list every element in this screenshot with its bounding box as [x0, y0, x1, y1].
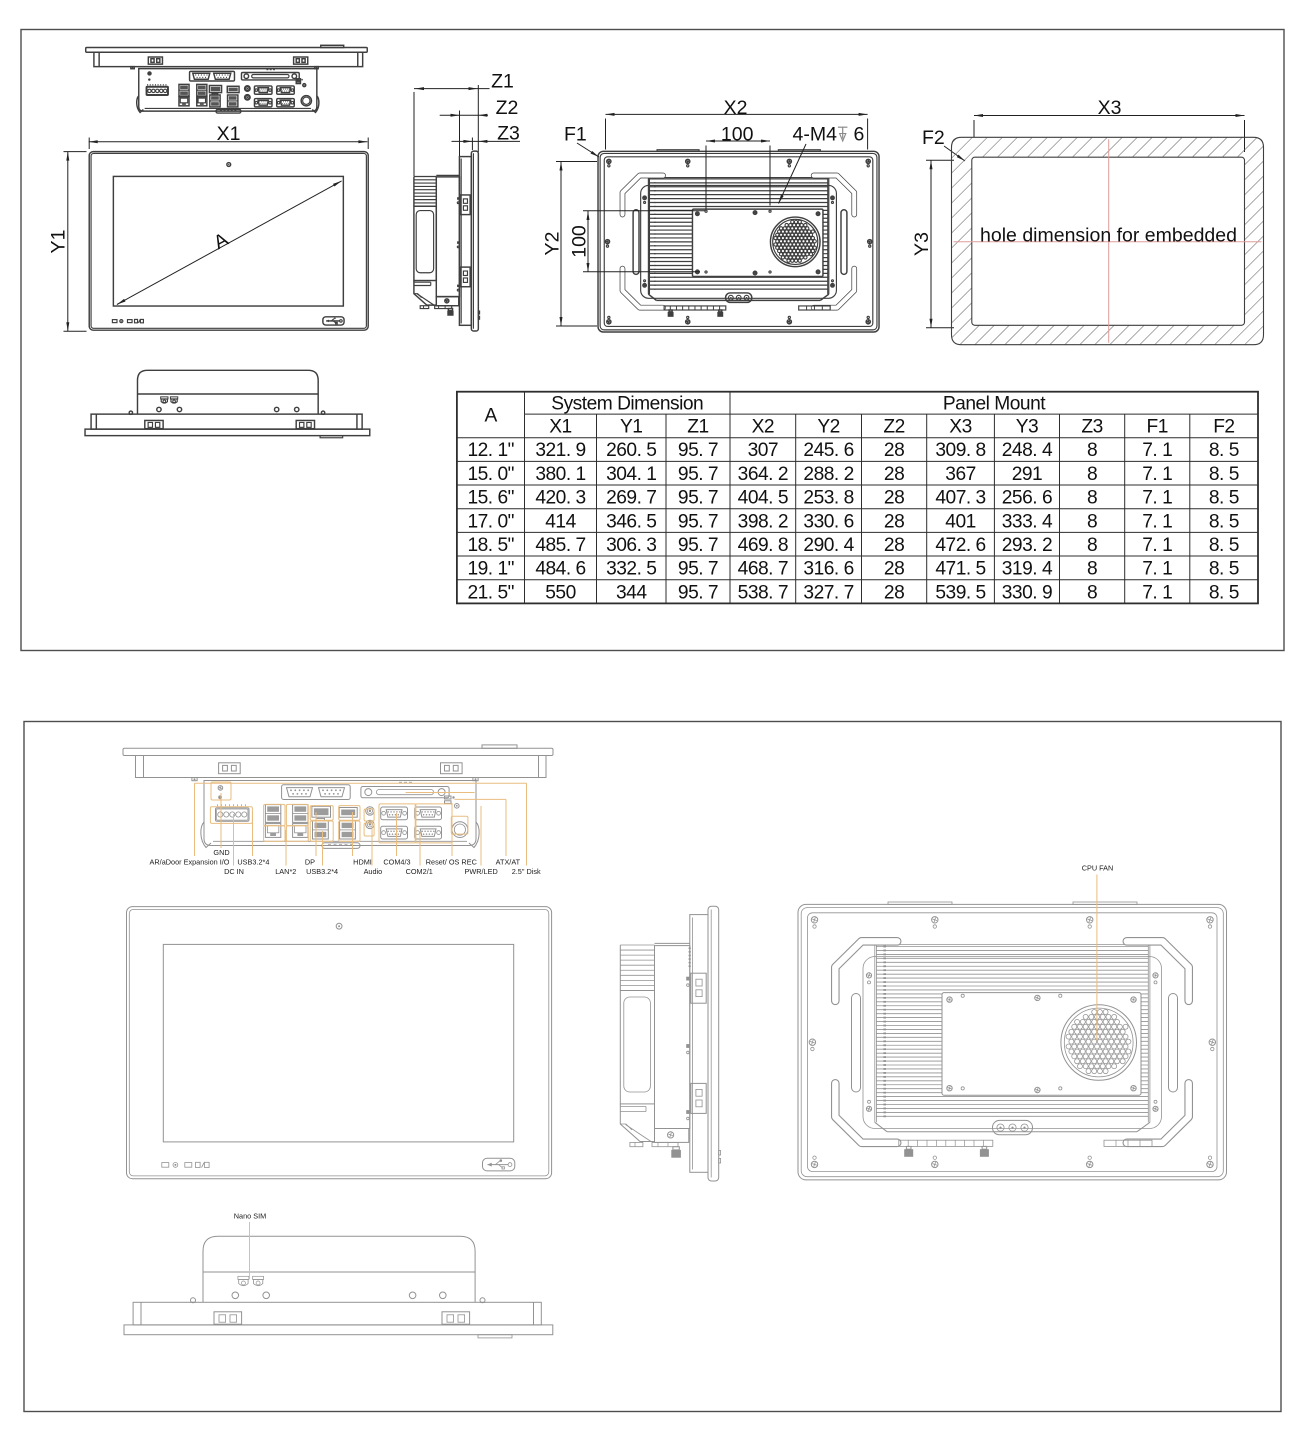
svg-text:330. 6: 330. 6	[803, 511, 853, 532]
svg-text:Nano SIM: Nano SIM	[234, 1212, 266, 1221]
svg-text:346. 5: 346. 5	[606, 511, 656, 532]
svg-text:AR/aDoor Expansion I/O: AR/aDoor Expansion I/O	[150, 857, 230, 866]
svg-text:95. 7: 95. 7	[678, 582, 718, 603]
svg-text:28: 28	[884, 559, 904, 580]
svg-text:15. 0": 15. 0"	[467, 464, 514, 485]
svg-text:8: 8	[1087, 582, 1097, 603]
svg-text:CPU FAN: CPU FAN	[1082, 864, 1114, 873]
svg-text:539. 5: 539. 5	[935, 582, 985, 603]
svg-text:304. 1: 304. 1	[606, 464, 656, 485]
svg-text:401: 401	[945, 511, 976, 532]
svg-text:USB3.2*4: USB3.2*4	[237, 857, 269, 866]
svg-text:System Dimension: System Dimension	[551, 394, 703, 415]
svg-text:8: 8	[1087, 559, 1097, 580]
svg-text:95. 7: 95. 7	[678, 488, 718, 509]
svg-text:364. 2: 364. 2	[738, 464, 788, 485]
svg-text:Reset/ OS REC: Reset/ OS REC	[426, 857, 477, 866]
svg-text:28: 28	[884, 440, 904, 461]
svg-text:Z1: Z1	[687, 417, 708, 438]
svg-text:538. 7: 538. 7	[738, 582, 788, 603]
svg-text:7. 1: 7. 1	[1142, 535, 1172, 556]
svg-text:485. 7: 485. 7	[535, 535, 585, 556]
svg-text:256. 6: 256. 6	[1002, 488, 1052, 509]
svg-text:471. 5: 471. 5	[935, 559, 985, 580]
svg-text:380. 1: 380. 1	[535, 464, 585, 485]
svg-text:15. 6": 15. 6"	[467, 488, 514, 509]
svg-text:309. 8: 309. 8	[935, 440, 985, 461]
svg-text:COM2/1: COM2/1	[406, 867, 433, 876]
svg-text:hole dimension for embedded: hole dimension for embedded	[980, 225, 1237, 247]
svg-text:95. 7: 95. 7	[678, 559, 718, 580]
svg-text:USB3.2*4: USB3.2*4	[306, 867, 338, 876]
svg-text:PWR/LED: PWR/LED	[464, 867, 497, 876]
svg-text:Y2: Y2	[817, 417, 839, 438]
svg-text:8: 8	[1087, 488, 1097, 509]
svg-text:8. 5: 8. 5	[1209, 535, 1239, 556]
svg-text:Audio: Audio	[364, 867, 383, 876]
svg-text:253. 8: 253. 8	[803, 488, 853, 509]
svg-text:HDMI: HDMI	[353, 857, 372, 866]
svg-text:327. 7: 327. 7	[803, 582, 853, 603]
svg-text:Y2: Y2	[542, 232, 564, 256]
svg-text:17. 0": 17. 0"	[467, 511, 514, 532]
svg-text:407. 3: 407. 3	[935, 488, 985, 509]
svg-text:8: 8	[1087, 464, 1097, 485]
svg-text:291: 291	[1012, 464, 1043, 485]
svg-text:484. 6: 484. 6	[535, 559, 585, 580]
svg-text:X1: X1	[549, 417, 571, 438]
svg-text:21. 5": 21. 5"	[467, 582, 514, 603]
svg-text:95. 7: 95. 7	[678, 535, 718, 556]
svg-text:8. 5: 8. 5	[1209, 440, 1239, 461]
svg-text:7. 1: 7. 1	[1142, 440, 1172, 461]
svg-text:Y3: Y3	[911, 232, 933, 256]
svg-text:95. 7: 95. 7	[678, 464, 718, 485]
svg-text:6: 6	[854, 124, 865, 146]
svg-text:8. 5: 8. 5	[1209, 559, 1239, 580]
svg-text:7. 1: 7. 1	[1142, 488, 1172, 509]
svg-text:X2: X2	[752, 417, 774, 438]
svg-text:293. 2: 293. 2	[1002, 535, 1052, 556]
svg-text:8: 8	[1087, 440, 1097, 461]
svg-text:95. 7: 95. 7	[678, 511, 718, 532]
svg-text:Y1: Y1	[48, 230, 70, 254]
svg-text:18. 5": 18. 5"	[467, 535, 514, 556]
svg-text:332. 5: 332. 5	[606, 559, 656, 580]
svg-text:GND: GND	[213, 848, 229, 857]
svg-text:468. 7: 468. 7	[738, 559, 788, 580]
svg-text:Z2: Z2	[883, 417, 904, 438]
svg-text:330. 9: 330. 9	[1002, 582, 1052, 603]
svg-text:Z3: Z3	[1081, 417, 1102, 438]
svg-text:Y3: Y3	[1016, 417, 1038, 438]
svg-text:8. 5: 8. 5	[1209, 511, 1239, 532]
svg-text:8. 5: 8. 5	[1209, 464, 1239, 485]
svg-text:F1: F1	[1147, 417, 1168, 438]
svg-text:4-M4: 4-M4	[793, 124, 838, 146]
svg-text:28: 28	[884, 582, 904, 603]
svg-text:LAN*2: LAN*2	[275, 867, 296, 876]
svg-text:7. 1: 7. 1	[1142, 464, 1172, 485]
svg-text:A: A	[485, 405, 498, 426]
svg-text:8. 5: 8. 5	[1209, 488, 1239, 509]
svg-text:404. 5: 404. 5	[738, 488, 788, 509]
svg-text:DP: DP	[305, 857, 315, 866]
svg-text:420. 3: 420. 3	[535, 488, 585, 509]
svg-text:7. 1: 7. 1	[1142, 511, 1172, 532]
svg-text:319. 4: 319. 4	[1002, 559, 1053, 580]
svg-text:367: 367	[945, 464, 976, 485]
svg-text:F2: F2	[1213, 417, 1234, 438]
svg-text:X3: X3	[949, 417, 971, 438]
svg-text:2.5" Disk: 2.5" Disk	[512, 867, 541, 876]
svg-text:398. 2: 398. 2	[738, 511, 788, 532]
svg-text:321. 9: 321. 9	[535, 440, 585, 461]
svg-text:DC IN: DC IN	[224, 867, 244, 876]
svg-text:414: 414	[545, 511, 576, 532]
svg-text:COM4/3: COM4/3	[383, 857, 410, 866]
svg-text:X2: X2	[724, 97, 748, 119]
svg-text:X3: X3	[1098, 97, 1122, 119]
svg-text:F2: F2	[922, 127, 945, 149]
svg-text:X1: X1	[217, 123, 241, 145]
svg-text:28: 28	[884, 535, 904, 556]
svg-text:245. 6: 245. 6	[803, 440, 853, 461]
svg-text:Panel Mount: Panel Mount	[943, 394, 1046, 415]
svg-text:95. 7: 95. 7	[678, 440, 718, 461]
svg-text:288. 2: 288. 2	[803, 464, 853, 485]
svg-text:28: 28	[884, 464, 904, 485]
svg-text:7. 1: 7. 1	[1142, 582, 1172, 603]
svg-text:7. 1: 7. 1	[1142, 559, 1172, 580]
svg-text:Z1: Z1	[491, 70, 514, 92]
svg-text:Z3: Z3	[497, 122, 520, 144]
svg-text:8: 8	[1087, 511, 1097, 532]
svg-text:F1: F1	[564, 124, 587, 146]
svg-text:316. 6: 316. 6	[803, 559, 853, 580]
svg-text:472. 6: 472. 6	[935, 535, 985, 556]
svg-text:100: 100	[721, 124, 754, 146]
svg-text:344: 344	[616, 582, 647, 603]
svg-text:ATX/AT: ATX/AT	[496, 857, 521, 866]
svg-text:269. 7: 269. 7	[606, 488, 656, 509]
svg-text:550: 550	[545, 582, 576, 603]
svg-text:248. 4: 248. 4	[1002, 440, 1053, 461]
svg-text:100: 100	[569, 225, 591, 258]
svg-text:28: 28	[884, 511, 904, 532]
svg-text:28: 28	[884, 488, 904, 509]
svg-text:333. 4: 333. 4	[1002, 511, 1053, 532]
svg-text:260. 5: 260. 5	[606, 440, 656, 461]
svg-text:12. 1": 12. 1"	[467, 440, 514, 461]
svg-text:19. 1": 19. 1"	[467, 559, 514, 580]
svg-text:469. 8: 469. 8	[738, 535, 788, 556]
svg-text:290. 4: 290. 4	[803, 535, 854, 556]
svg-text:8: 8	[1087, 535, 1097, 556]
svg-text:Z2: Z2	[496, 97, 519, 119]
svg-text:306. 3: 306. 3	[606, 535, 656, 556]
svg-text:8. 5: 8. 5	[1209, 582, 1239, 603]
svg-text:307: 307	[748, 440, 779, 461]
svg-text:Y1: Y1	[620, 417, 642, 438]
